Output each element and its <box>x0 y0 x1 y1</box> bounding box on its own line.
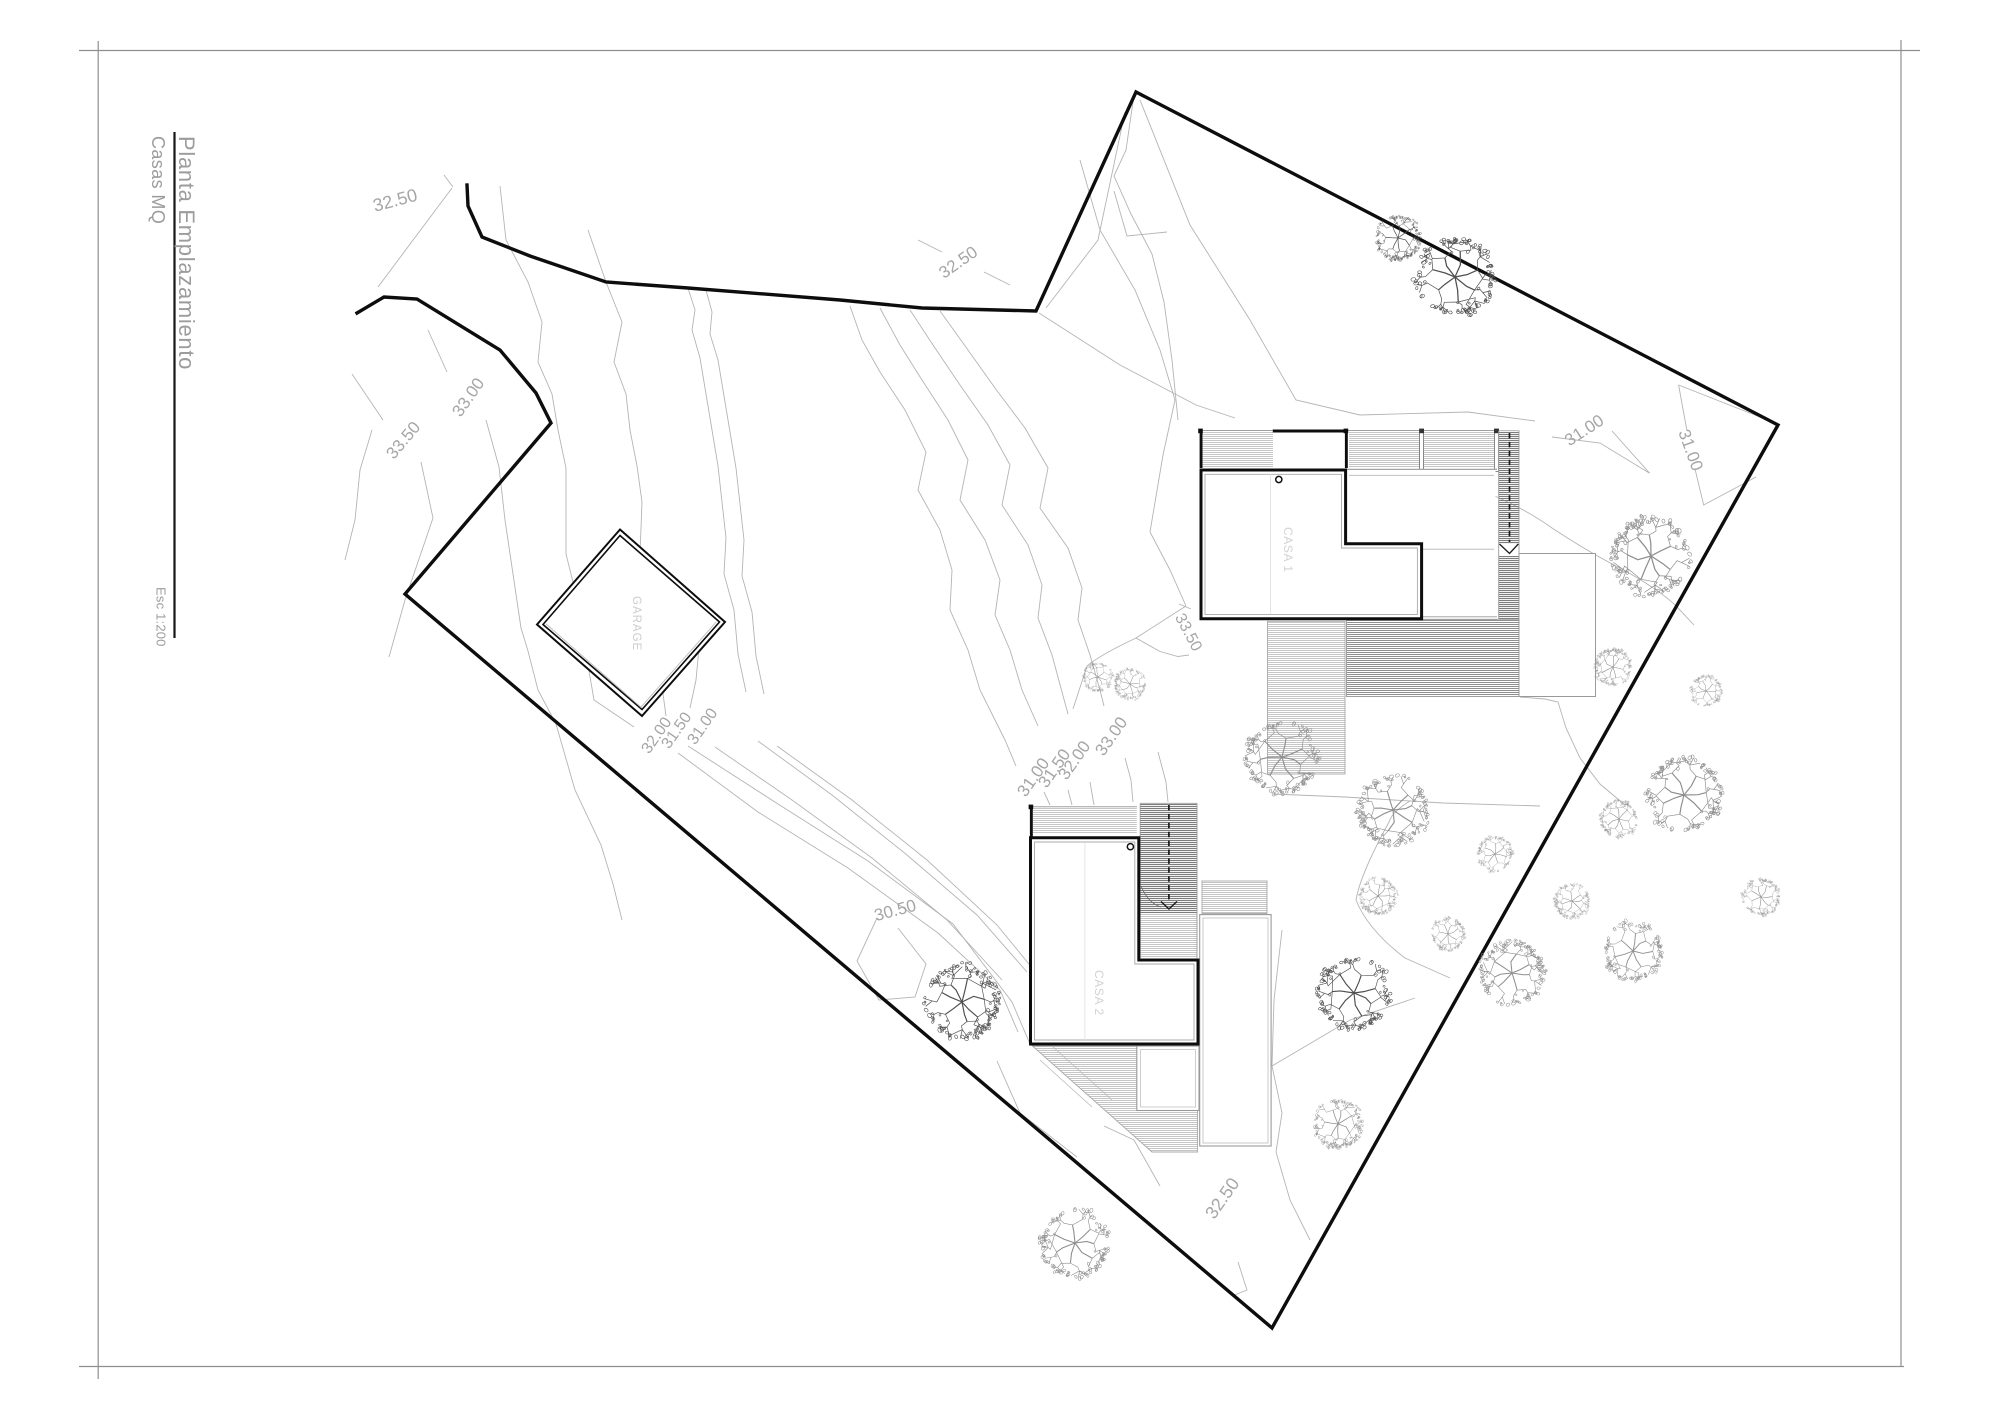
svg-text:30.50: 30.50 <box>872 896 918 925</box>
svg-text:33.50: 33.50 <box>382 418 424 463</box>
svg-text:32.50: 32.50 <box>1201 1174 1243 1222</box>
svg-text:CASA 2: CASA 2 <box>1092 970 1106 1016</box>
svg-text:32.50: 32.50 <box>371 185 420 216</box>
svg-text:32.50: 32.50 <box>935 242 981 282</box>
svg-text:33.00: 33.00 <box>1091 713 1131 759</box>
svg-text:CASA 1: CASA 1 <box>1281 527 1295 573</box>
svg-text:31.00: 31.00 <box>1674 427 1706 473</box>
svg-text:Planta Emplazamiento: Planta Emplazamiento <box>174 136 199 370</box>
svg-text:GARAGE: GARAGE <box>630 596 642 651</box>
svg-text:Casas MQ: Casas MQ <box>148 136 168 224</box>
svg-text:31.00: 31.00 <box>1561 411 1607 450</box>
svg-text:Esc 1:200: Esc 1:200 <box>154 587 169 647</box>
svg-text:33.00: 33.00 <box>448 374 488 420</box>
